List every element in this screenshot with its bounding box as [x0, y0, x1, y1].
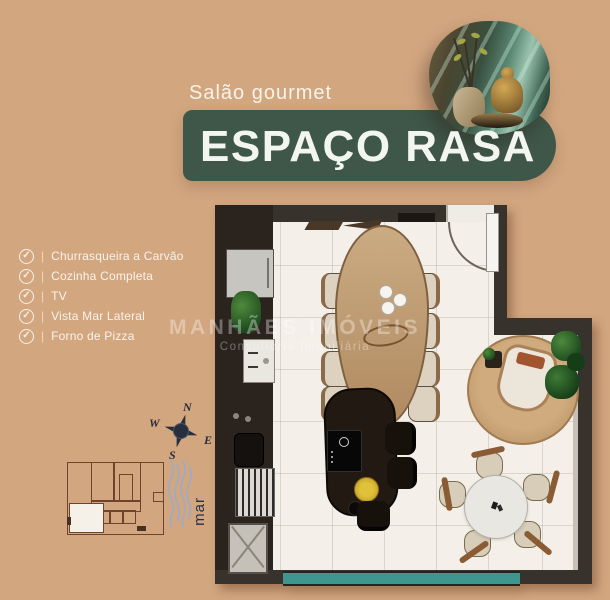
- plate: [379, 285, 393, 299]
- watermark-line2: Consultoria Imobiliária: [150, 341, 440, 353]
- keyplan-room: [153, 492, 164, 502]
- plate: [381, 301, 395, 315]
- compass-rose-icon: [163, 413, 199, 449]
- fridge-handle: [267, 258, 269, 288]
- compass-label-east: E: [204, 433, 212, 448]
- side-table-plant: [483, 348, 495, 360]
- buddha-statue: [491, 77, 523, 113]
- highlighted-unit: [69, 503, 104, 533]
- knob: [331, 456, 333, 458]
- round-table-chair: [523, 474, 550, 501]
- feature-row: ✓ | Vista Mar Lateral: [19, 306, 145, 326]
- wall-cabinet: [398, 213, 435, 222]
- compass-label-west: W: [149, 416, 160, 431]
- check-circle-icon: ✓: [19, 289, 34, 304]
- keyplan-balcony: [110, 510, 123, 524]
- header-subtitle: Salão gourmet: [189, 82, 332, 105]
- pizza: [354, 477, 379, 502]
- sink-detail: [248, 366, 258, 368]
- check-circle-icon: ✓: [19, 329, 34, 344]
- cooktop: [327, 430, 362, 472]
- feature-separator: |: [41, 269, 44, 283]
- feature-label: Cozinha Completa: [51, 269, 153, 283]
- feature-label: Churrasqueira a Carvão: [51, 249, 183, 263]
- keyplan-mark: [67, 517, 71, 525]
- shelf-decor: [304, 221, 343, 230]
- zen-decor-photo: [429, 21, 550, 135]
- counter-knob: [233, 413, 239, 419]
- charcoal-grill: [235, 468, 275, 517]
- sea-view-window: [283, 571, 520, 586]
- feature-row: ✓ | Churrasqueira a Carvão: [19, 246, 184, 266]
- burner: [339, 437, 349, 447]
- chair-arm: [441, 477, 453, 512]
- service-shaft: [228, 523, 268, 574]
- feature-label: Vista Mar Lateral: [51, 309, 145, 323]
- watermark: MANHÃES IMÓVEIS Consultoria Imobiliária: [150, 316, 440, 353]
- prep-sink: [234, 433, 264, 467]
- bar-stool: [387, 457, 417, 489]
- feature-separator: |: [41, 309, 44, 323]
- round-table: [464, 475, 528, 539]
- knob: [331, 451, 333, 453]
- round-table-chair: [439, 481, 466, 508]
- building-keyplan: [67, 462, 165, 536]
- keyplan-room: [119, 474, 133, 502]
- sea-label: mar: [191, 497, 208, 526]
- entry-door: [486, 213, 499, 272]
- feature-label: Forno de Pizza: [51, 329, 135, 343]
- faucet-knob: [263, 358, 269, 364]
- check-circle-icon: ✓: [19, 269, 34, 284]
- floorplan: [215, 205, 592, 584]
- feature-separator: |: [41, 249, 44, 263]
- knob: [331, 461, 333, 463]
- plant: [567, 353, 585, 371]
- bar-stool: [357, 501, 390, 531]
- feature-separator: |: [41, 289, 44, 303]
- feature-separator: |: [41, 329, 44, 343]
- bar-stool: [385, 422, 416, 455]
- keyplan-balcony: [123, 510, 136, 524]
- armchair-pillow: [516, 351, 546, 369]
- check-circle-icon: ✓: [19, 309, 34, 324]
- check-circle-icon: ✓: [19, 249, 34, 264]
- feature-row: ✓ | Forno de Pizza: [19, 326, 135, 346]
- feature-row: ✓ | Cozinha Completa: [19, 266, 153, 286]
- sea-waves-icon: [166, 458, 192, 538]
- counter-knob: [245, 416, 251, 422]
- feature-row: ✓ | TV: [19, 286, 67, 306]
- table-centerpiece: [497, 504, 503, 511]
- page-title: ESPAÇO RASA: [200, 122, 536, 172]
- keyplan-mark: [137, 526, 146, 531]
- keyplan-room: [91, 462, 115, 502]
- marketing-page: Salão gourmet ESPAÇO RASA ✓ | Churrasque…: [0, 0, 610, 600]
- feature-label: TV: [51, 289, 67, 303]
- watermark-line1: MANHÃES IMÓVEIS: [150, 316, 440, 340]
- plate: [393, 293, 407, 307]
